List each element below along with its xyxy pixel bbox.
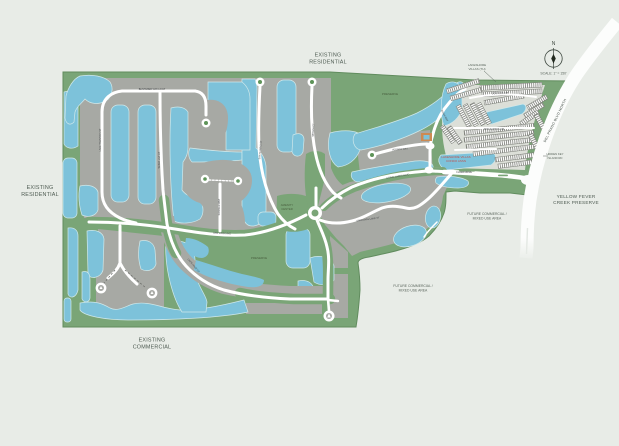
svg-text:BLISTERED OAK LN CT: BLISTERED OAK LN CT xyxy=(139,88,166,91)
svg-text:ISLAND RD: ISLAND RD xyxy=(548,156,563,160)
svg-text:DOS RIOS CIR: DOS RIOS CIR xyxy=(492,92,509,96)
svg-text:N: N xyxy=(552,41,556,47)
svg-text:YELLOW FEVER: YELLOW FEVER xyxy=(557,194,596,199)
svg-text:W BAY LILY CT: W BAY LILY CT xyxy=(158,151,161,168)
svg-text:EXISTING: EXISTING xyxy=(27,185,54,191)
svg-text:VILLAS (TH): VILLAS (TH) xyxy=(468,67,485,71)
svg-text:MIXED USE AREA: MIXED USE AREA xyxy=(399,289,428,293)
svg-text:DOS SANTOS CIR: DOS SANTOS CIR xyxy=(484,128,505,131)
svg-text:COMMERCIAL: COMMERCIAL xyxy=(133,345,172,351)
svg-text:CREEK PRESERVE: CREEK PRESERVE xyxy=(553,200,599,205)
svg-text:PRESERVE: PRESERVE xyxy=(251,256,267,260)
svg-text:SOMMER WAY: SOMMER WAY xyxy=(218,198,221,215)
svg-text:EXISTING: EXISTING xyxy=(139,338,166,344)
svg-text:LAKE HAMMOCK ST: LAKE HAMMOCK ST xyxy=(99,128,102,152)
svg-text:FUTURE COMMERCIAL /: FUTURE COMMERCIAL / xyxy=(467,212,506,216)
svg-text:CLARA DRIVE: CLARA DRIVE xyxy=(456,171,472,174)
svg-text:MIXED USE AREA: MIXED USE AREA xyxy=(473,217,502,221)
svg-text:RESIDENTIAL: RESIDENTIAL xyxy=(21,192,59,198)
svg-text:CENTER: CENTER xyxy=(281,207,293,211)
svg-text:CONDO ASSN: CONDO ASSN xyxy=(446,159,466,163)
svg-text:RESIDENTIAL: RESIDENTIAL xyxy=(309,60,347,66)
svg-text:FUTURE COMMERCIAL /: FUTURE COMMERCIAL / xyxy=(393,284,432,288)
svg-text:PRESERVE: PRESERVE xyxy=(382,92,398,96)
svg-text:SCALE: 1" = 150': SCALE: 1" = 150' xyxy=(540,72,567,76)
svg-text:EXISTING: EXISTING xyxy=(315,53,342,59)
